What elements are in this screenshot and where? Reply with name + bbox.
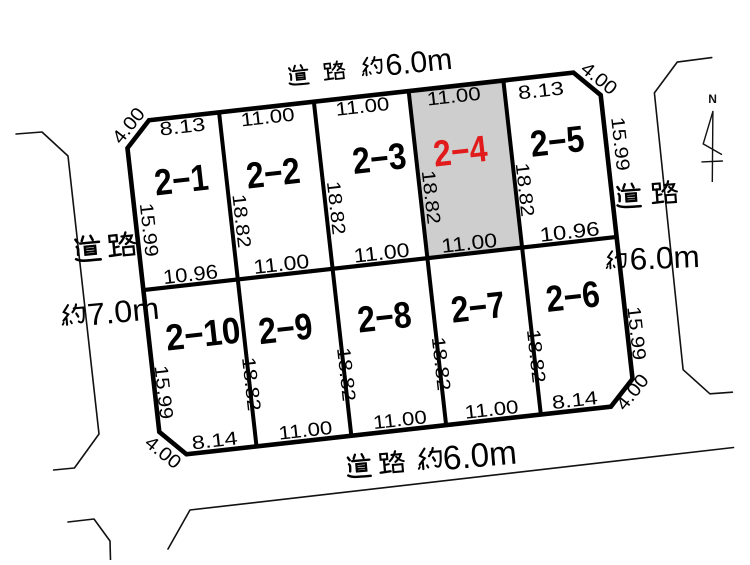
svg-text:2−4: 2−4: [431, 128, 490, 175]
svg-text:6.0m: 6.0m: [629, 239, 700, 277]
svg-text:2−2: 2−2: [244, 150, 302, 197]
svg-text:2−9: 2−9: [256, 305, 314, 352]
svg-text:N: N: [708, 92, 717, 106]
svg-text:2−10: 2−10: [164, 310, 243, 359]
svg-text:2−1: 2−1: [152, 157, 210, 204]
svg-text:2−6: 2−6: [544, 273, 602, 320]
svg-text:2−7: 2−7: [449, 284, 507, 331]
svg-text:6.0m: 6.0m: [384, 43, 454, 83]
svg-text:2−8: 2−8: [355, 294, 413, 341]
svg-text:6.0m: 6.0m: [441, 434, 518, 478]
svg-text:7.0m: 7.0m: [86, 291, 161, 333]
svg-text:2−5: 2−5: [528, 118, 586, 165]
svg-text:2−3: 2−3: [350, 135, 408, 182]
